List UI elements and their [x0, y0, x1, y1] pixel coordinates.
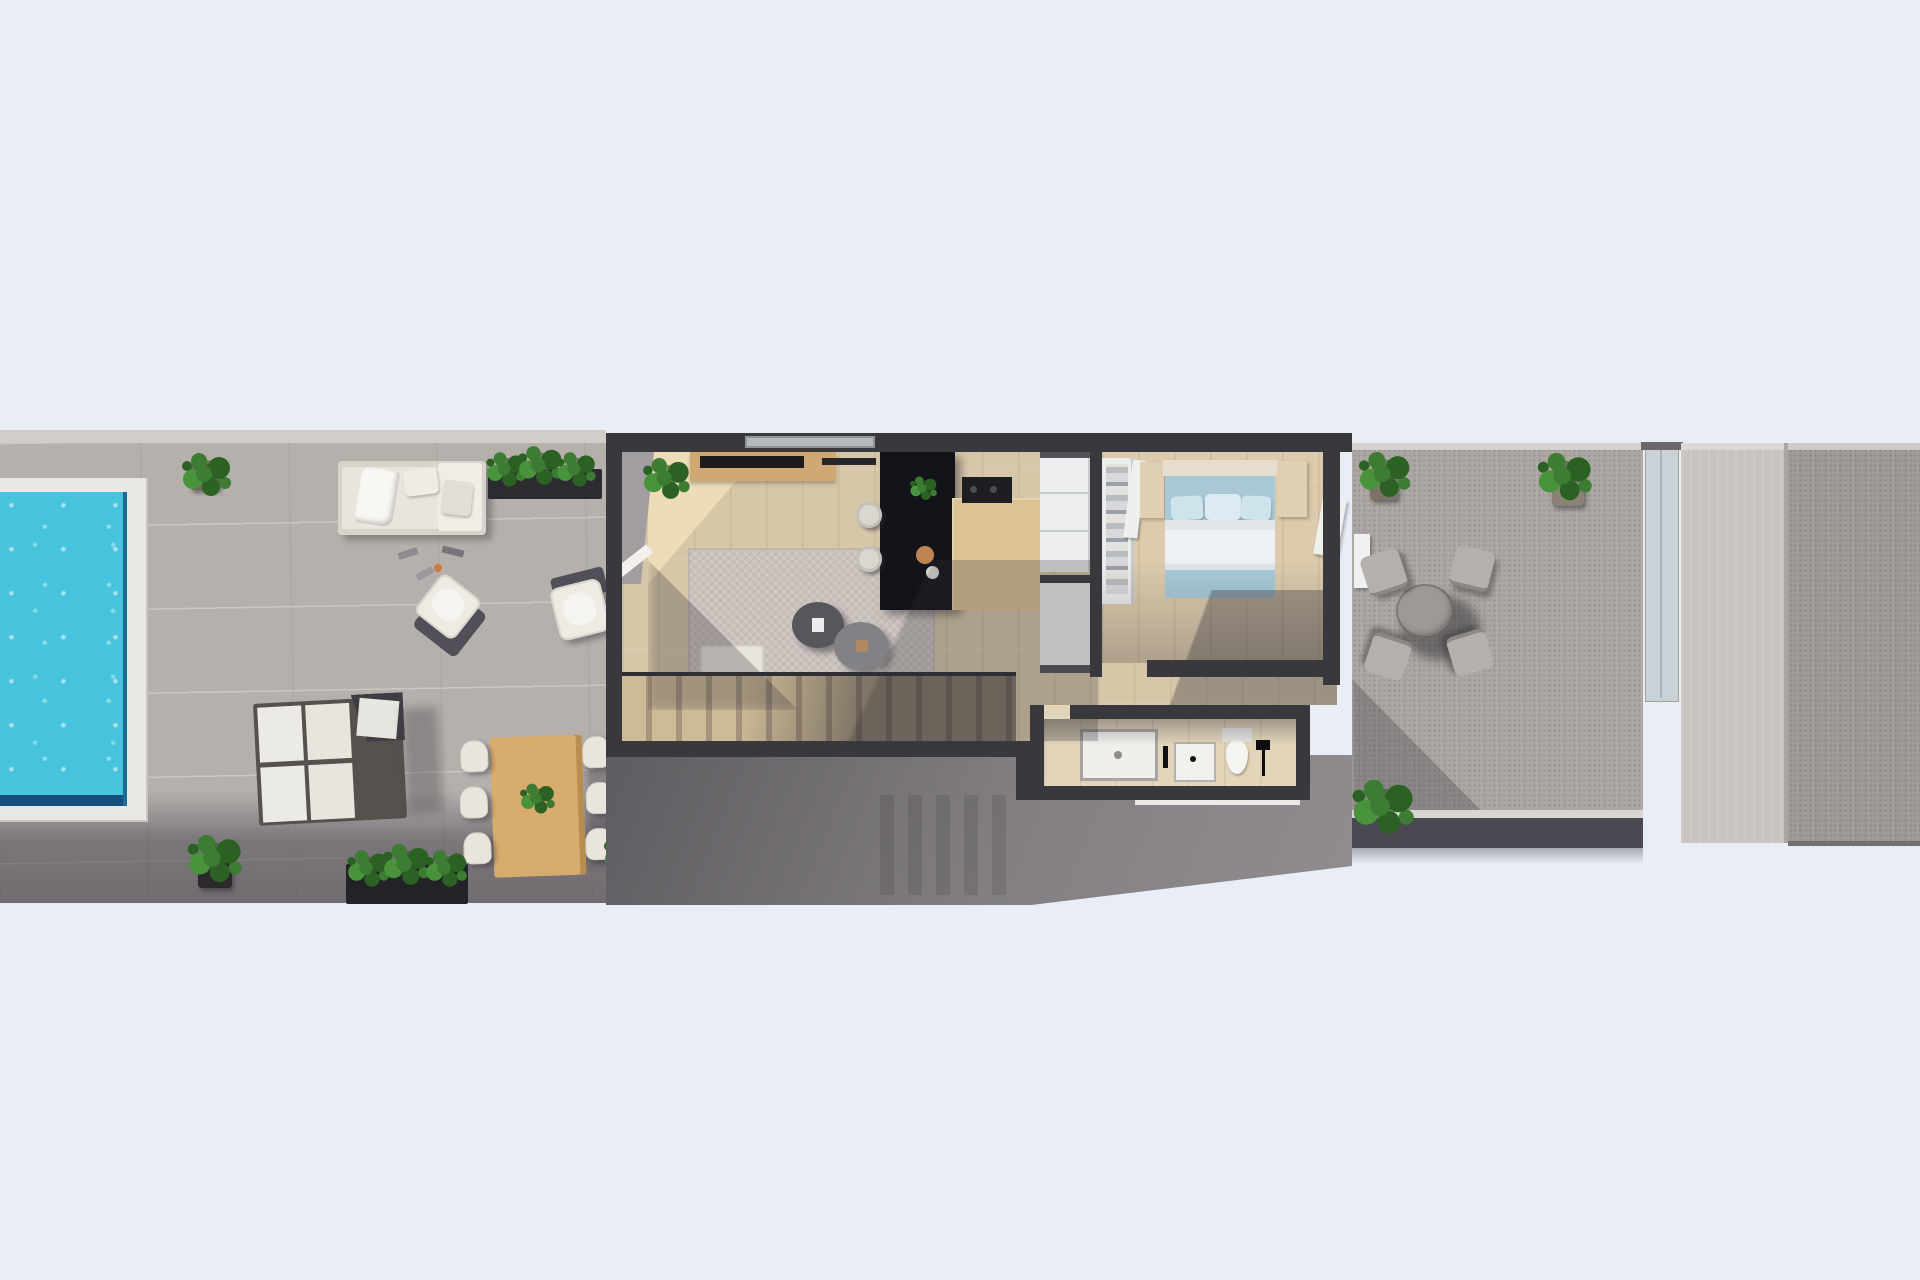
planter-hedge	[344, 850, 470, 906]
outdoor-sofa	[338, 461, 486, 535]
sun-loungers	[251, 690, 410, 830]
bedroom-bottom-wall	[1147, 660, 1337, 677]
floorplan-render	[0, 0, 1920, 1280]
shower-tap	[1163, 746, 1168, 768]
side-passage	[1681, 443, 1788, 843]
bathroom-top-wall	[1030, 705, 1310, 719]
bathroom-door-gap	[1040, 705, 1070, 719]
front-glass-door	[745, 436, 875, 448]
tv	[700, 456, 804, 468]
nightstand-right	[1277, 461, 1307, 517]
poolside-accessories	[396, 548, 472, 586]
entry-plant	[640, 456, 688, 508]
left-wall	[606, 433, 622, 757]
hedge-planter-top	[486, 455, 606, 503]
patio-stair-shadow	[880, 795, 1020, 895]
nightstand-left	[1140, 462, 1164, 518]
bottom-wall	[606, 741, 1030, 757]
cooktop	[962, 477, 1012, 503]
planter-a	[182, 834, 248, 906]
terrace-top-edge	[0, 430, 606, 443]
tall-units	[1040, 452, 1090, 572]
front-wall	[606, 433, 1352, 452]
bathroom-bottom-wall	[1030, 786, 1310, 800]
terrace-plant-a	[1356, 448, 1412, 528]
neighbour-terrace	[1788, 443, 1920, 846]
pool-deep-edge	[0, 795, 123, 806]
bathroom-shadow	[1044, 719, 1296, 745]
bedroom-right-wall	[1323, 433, 1340, 685]
bistro-set	[1350, 540, 1500, 680]
swimming-pool	[0, 492, 127, 806]
stair-bath-connector	[1016, 741, 1030, 800]
vanity	[1174, 742, 1216, 782]
bedroom-shadow	[1102, 560, 1337, 663]
plant-front	[172, 448, 242, 518]
island-plant	[908, 474, 936, 502]
bath-lamp	[1256, 740, 1274, 778]
living-diagonal-shadow	[622, 560, 1098, 741]
terrace-plant-c	[1352, 776, 1410, 864]
terrace-plant-b	[1530, 450, 1600, 524]
bedroom-left-wall	[1090, 452, 1102, 677]
privacy-screen	[1643, 444, 1681, 704]
soundbar	[822, 458, 876, 465]
